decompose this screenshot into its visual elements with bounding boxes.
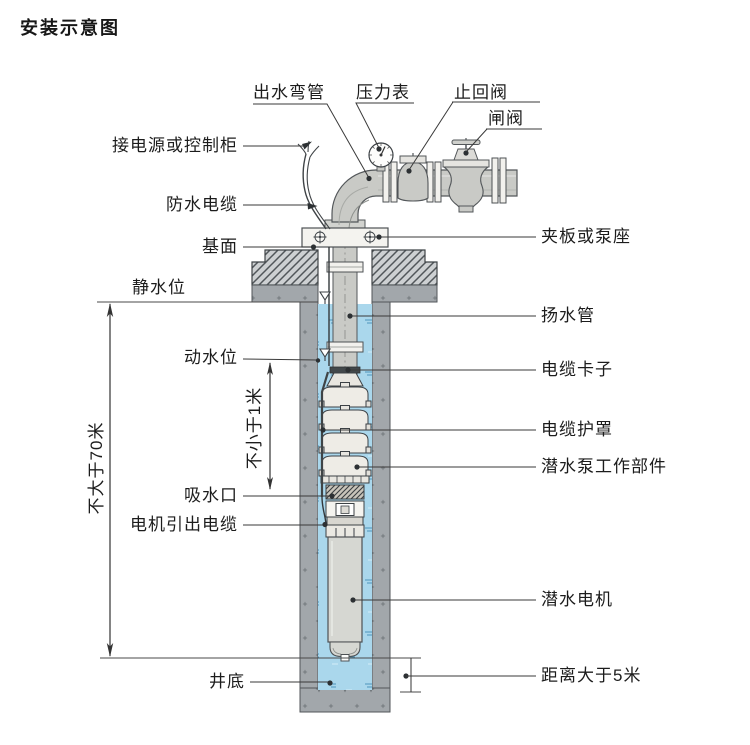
label-motor-lead-cable: 电机引出电缆 xyxy=(130,515,238,535)
label-well-bottom: 井底 xyxy=(209,672,245,692)
leader-arrow xyxy=(302,142,312,150)
check-valve-graphic xyxy=(398,153,428,201)
label-cable-clamp: 电缆卡子 xyxy=(541,360,613,380)
label-static-water-level: 静水位 xyxy=(132,278,186,298)
dimension-70m xyxy=(107,303,113,657)
label-riser-pipe: 扬水管 xyxy=(541,306,595,326)
label-suction-inlet: 吸水口 xyxy=(184,486,238,506)
label-clamp-or-pump-seat: 夹板或泵座 xyxy=(541,227,631,247)
installation-diagram xyxy=(0,0,750,745)
label-waterproof-cable: 防水电缆 xyxy=(166,195,238,215)
label-pressure-gauge: 压力表 xyxy=(356,83,410,103)
coupling-graphic xyxy=(326,501,364,537)
label-outlet-elbow: 出水弯管 xyxy=(253,83,325,103)
label-bottom-distance: 距离大于5米 xyxy=(541,666,641,686)
label-power-or-control-cabinet: 接电源或控制柜 xyxy=(112,136,238,156)
motor-graphic xyxy=(328,537,362,661)
wellhead-plate-graphic xyxy=(302,228,388,247)
installation-diagram-page: 安装示意图 xyxy=(0,0,750,745)
dimension-5m xyxy=(403,658,536,692)
label-gate-valve: 闸阀 xyxy=(488,109,524,129)
label-check-valve: 止回阀 xyxy=(454,83,508,103)
label-cable-guard: 电缆护罩 xyxy=(541,420,613,440)
label-pump-working-parts: 潜水泵工作部件 xyxy=(541,457,667,477)
label-dynamic-water-level: 动水位 xyxy=(184,348,238,368)
label-max-depth: 不大于70米 xyxy=(87,422,107,515)
dimension-1m xyxy=(267,362,273,490)
label-submersible-motor: 潜水电机 xyxy=(541,590,613,610)
label-base-surface: 基面 xyxy=(202,237,238,257)
label-min-submergence: 不小于1米 xyxy=(245,387,265,469)
